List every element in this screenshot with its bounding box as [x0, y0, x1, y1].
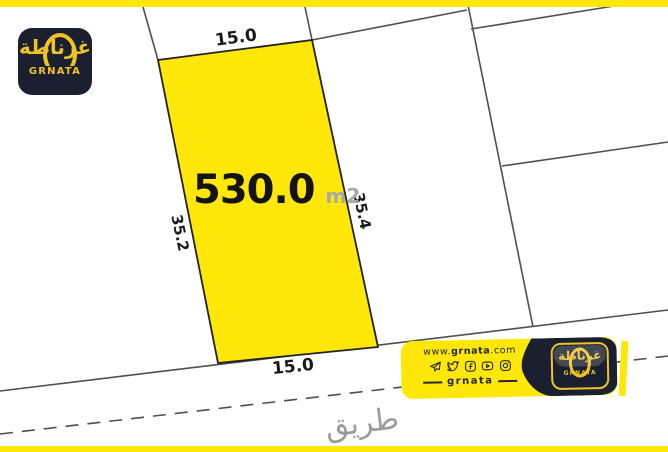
info-banner: www.grnata.com [400, 337, 617, 400]
handle-right-line [498, 379, 517, 381]
website-url: www.grnata.com [409, 345, 531, 359]
facebook-icon [463, 360, 476, 373]
handle-left-line [423, 381, 442, 383]
boundary-line [468, 5, 533, 327]
telegram-icon [428, 360, 441, 373]
bottom-accent-strip [0, 446, 668, 452]
instagram-icon [498, 359, 511, 372]
grnata-logo-badge: غرناطة GRNATA [18, 28, 92, 95]
handle-text: grnata [447, 375, 494, 387]
logo-arabic-text: غرناطة [553, 348, 607, 363]
social-icons-row [409, 359, 531, 375]
logo-latin-text: GRNATA [18, 66, 92, 77]
twitter-icon [446, 360, 459, 373]
plot-advert-canvas: 15.0 15.0 35.2 35.4 530.0 m2 طريق غرناطة… [0, 0, 668, 452]
parcel-area-value: 530.0 [193, 170, 315, 210]
road-marker-bar [619, 341, 629, 396]
parcel-area: 530.0 m2 [193, 170, 360, 210]
parcel-area-unit: m2 [326, 184, 361, 208]
boundary-line [471, 6, 614, 29]
youtube-icon [481, 359, 494, 372]
boundary-line [143, 7, 158, 60]
banner-content: www.grnata.com [409, 345, 532, 389]
boundary-line [312, 10, 467, 40]
boundary-line [305, 7, 312, 40]
logo-latin-text: GRNATA [553, 369, 607, 377]
top-accent-strip [0, 0, 668, 7]
logo-arabic-text: غرناطة [18, 35, 92, 59]
grnata-logo-small: غرناطة GRNATA [550, 342, 609, 390]
boundary-line [502, 142, 668, 166]
